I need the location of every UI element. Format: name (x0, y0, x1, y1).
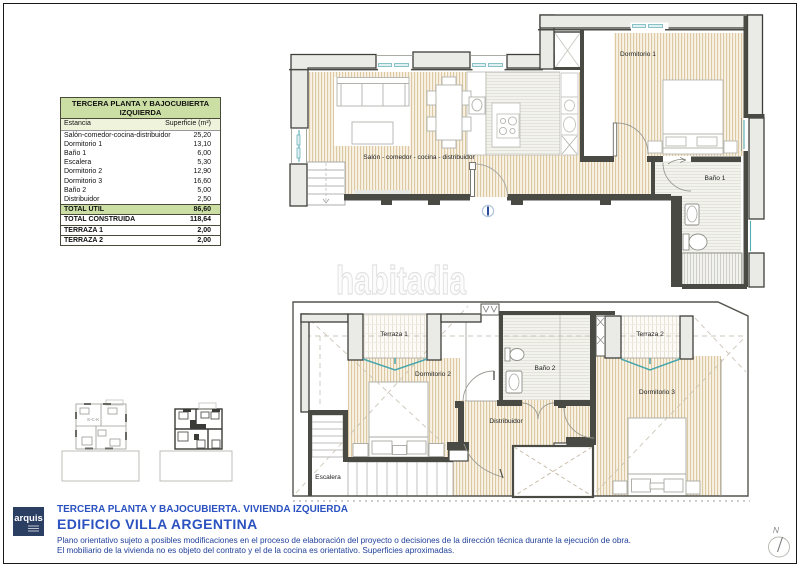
svg-text:Dormitorio 2: Dormitorio 2 (415, 371, 451, 378)
svg-text:Baño 1: Baño 1 (705, 175, 726, 182)
svg-text:Terraza 1: Terraza 1 (380, 331, 408, 338)
svg-text:Escalera: Escalera (315, 474, 341, 481)
svg-text:Salón - comedor - cocina - dis: Salón - comedor - cocina - distribuidor (363, 154, 475, 161)
svg-text:arquis: arquis (14, 513, 43, 524)
svg-text:Terraza 2: Terraza 2 (636, 331, 664, 338)
svg-text:Distribuidor: Distribuidor (489, 418, 523, 425)
svg-text:Baño 2: Baño 2 (535, 365, 556, 372)
svg-text:Dormitorio 1: Dormitorio 1 (620, 51, 656, 58)
svg-text:N: N (773, 525, 780, 535)
svg-text:S-C-K: S-C-K (87, 417, 99, 422)
svg-text:habitadia: habitadia (336, 259, 467, 303)
svg-text:Dormitorio 3: Dormitorio 3 (639, 389, 675, 396)
